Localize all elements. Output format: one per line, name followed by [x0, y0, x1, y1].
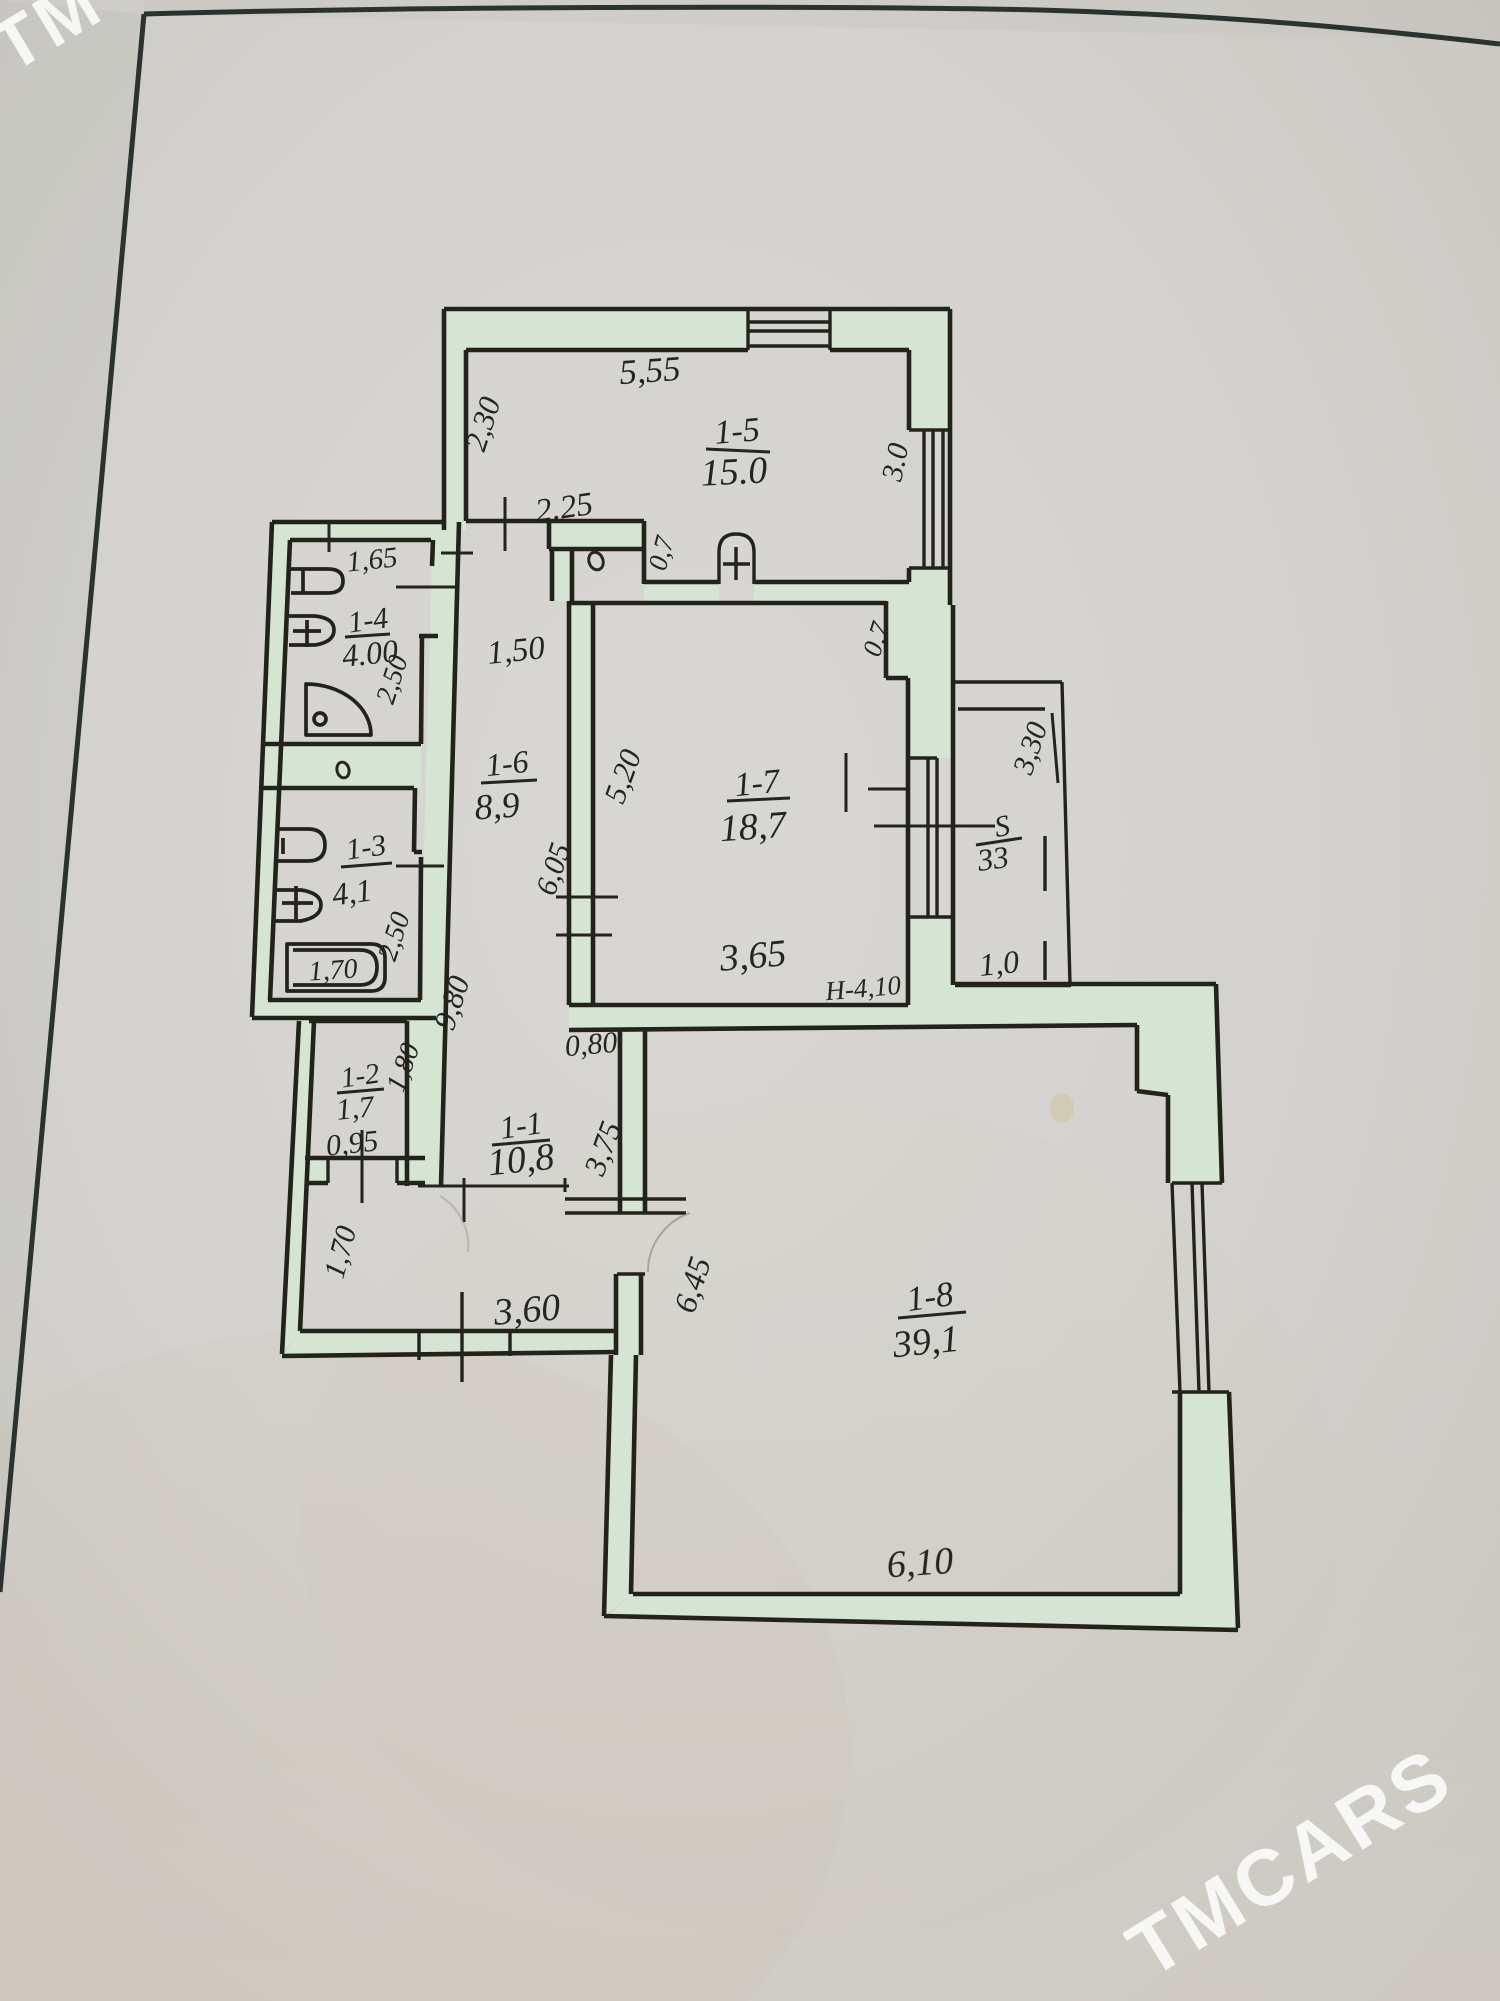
svg-text:3,60: 3,60: [491, 1286, 562, 1334]
svg-text:1,7: 1,7: [335, 1090, 378, 1127]
svg-text:15.0: 15.0: [700, 449, 769, 494]
svg-text:1,0: 1,0: [977, 943, 1021, 983]
svg-text:1,65: 1,65: [345, 541, 399, 578]
svg-text:0,95: 0,95: [324, 1124, 380, 1162]
svg-text:3,65: 3,65: [717, 932, 788, 980]
svg-text:39,1: 39,1: [890, 1318, 962, 1367]
svg-text:6,10: 6,10: [885, 1540, 954, 1587]
svg-text:1,50: 1,50: [485, 630, 547, 672]
svg-text:1-3: 1-3: [344, 828, 388, 866]
svg-text:18,7: 18,7: [718, 804, 789, 851]
svg-text:4,1: 4,1: [330, 871, 375, 912]
svg-text:1,70: 1,70: [308, 953, 359, 987]
svg-text:33: 33: [974, 839, 1011, 878]
svg-text:5,55: 5,55: [618, 349, 682, 392]
svg-text:1-6: 1-6: [484, 743, 530, 783]
svg-text:10,8: 10,8: [486, 1136, 557, 1185]
svg-text:0,80: 0,80: [563, 1026, 618, 1063]
svg-text:1-5: 1-5: [713, 411, 761, 452]
svg-text:8,9: 8,9: [473, 784, 521, 827]
